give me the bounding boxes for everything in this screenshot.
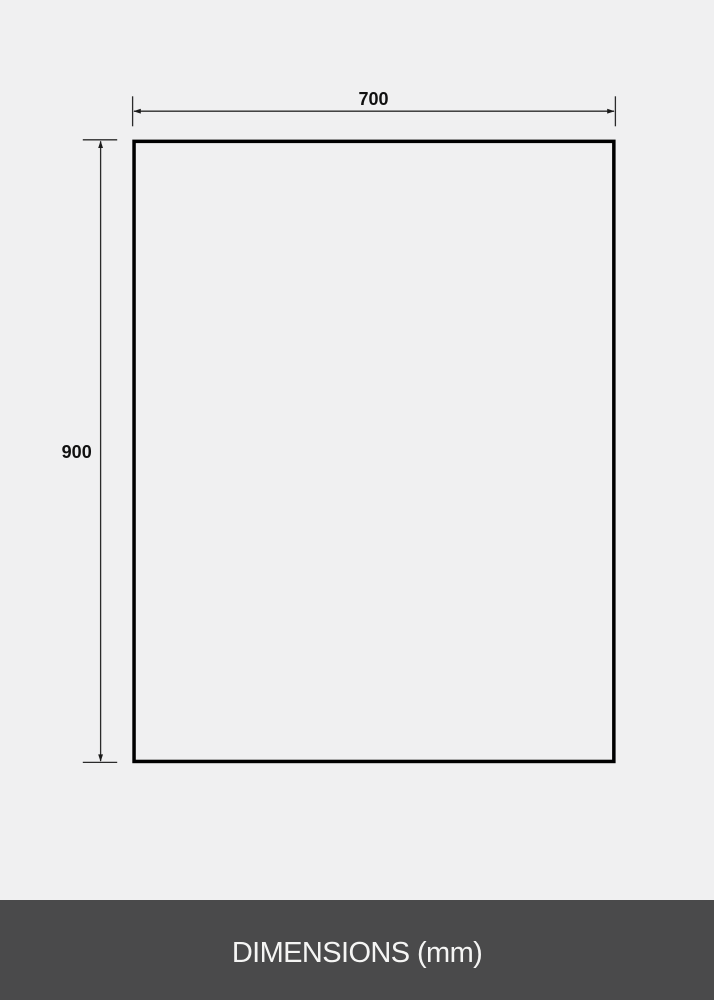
svg-text:700: 700 bbox=[358, 89, 388, 109]
svg-text:900: 900 bbox=[62, 442, 92, 462]
